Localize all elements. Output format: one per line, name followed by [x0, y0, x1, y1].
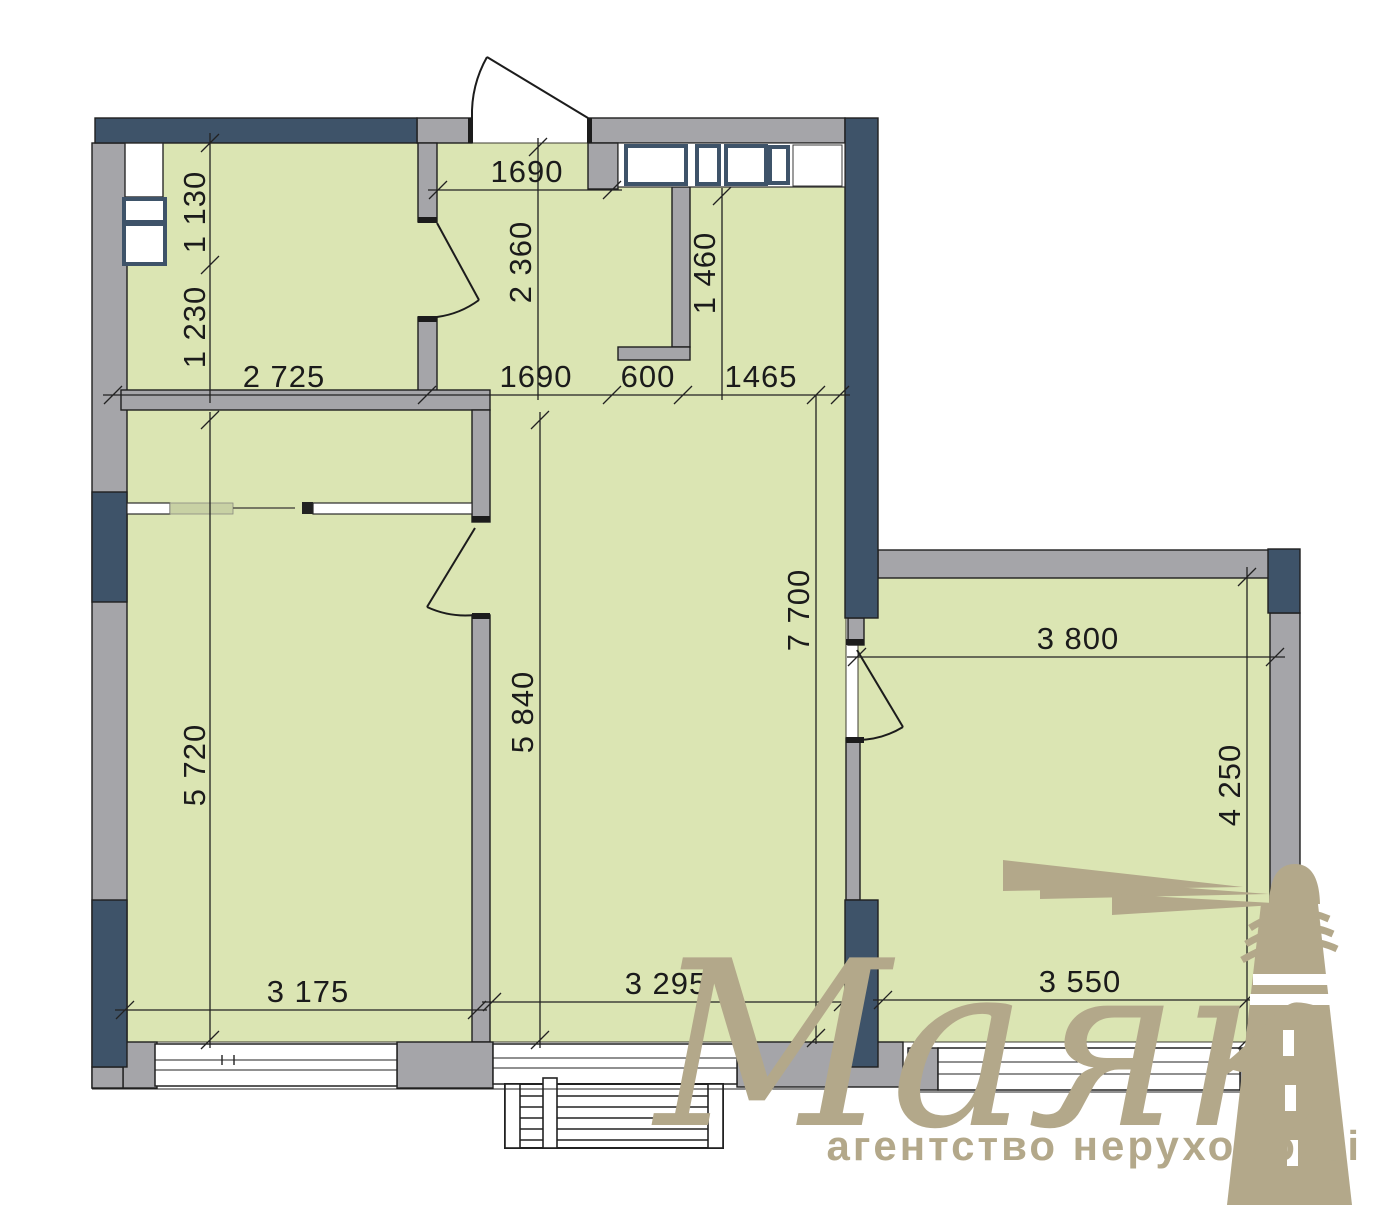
shaft-box [124, 224, 165, 264]
shaft-box-plain [125, 143, 163, 197]
partition-jamb [302, 502, 313, 514]
dim-label-closet-shaft-height: 1 130 [177, 171, 212, 254]
partition-segment [170, 503, 233, 514]
wall-top-gray-right [588, 118, 845, 143]
partition-segment [127, 503, 170, 514]
dim-label-living-height: 5 840 [505, 671, 540, 754]
shaft-box [626, 146, 686, 184]
shaft-box [770, 147, 788, 183]
pilaster-left-mid [92, 492, 127, 602]
wall-hall-left-upper [418, 143, 437, 222]
dim-label-niche-width: 600 [621, 359, 676, 394]
wall-bedroom-right-upper [472, 410, 490, 522]
shaft-box [697, 146, 719, 184]
dim-label-bedroom-height: 5 720 [177, 724, 212, 807]
dim-label-hall-depth: 2 360 [503, 221, 538, 304]
dim-label-kitchen-top-width: 3 800 [1037, 621, 1120, 656]
dim-label-niche-depth: 1 460 [687, 232, 722, 315]
wall-kitchen-top [878, 550, 1270, 578]
watermark-tagline-text: агентство нерухомості [827, 1122, 1362, 1169]
dim-label-closet-width: 2 725 [243, 359, 326, 394]
dim-label-bedroom-width: 3 175 [267, 974, 350, 1009]
wall-bedroom-right-lower [472, 615, 490, 1042]
floor-plan-drawing: 1690 2 725 1690 600 1465 1 130 1 230 2 3… [0, 0, 1400, 1208]
wall-bottom-corner-left [123, 1042, 157, 1088]
wall-living-right-navy-top [845, 118, 878, 618]
shaft-box [726, 146, 766, 184]
wall-kitchen-corner-navy-top [1268, 549, 1300, 613]
wall-bottom-corner-left-outer [92, 1067, 123, 1088]
shaft-box [124, 199, 165, 222]
window-bedroom [155, 1044, 397, 1086]
wall-hall-left-lower [418, 317, 437, 392]
shaft-box-plain [793, 145, 842, 186]
door-entrance [468, 57, 592, 143]
dim-label-hall-top-width: 1690 [491, 154, 564, 189]
partition-segment [313, 503, 472, 514]
dim-label-kitchen-height: 4 250 [1212, 744, 1247, 827]
dim-label-hall-right-width: 1465 [725, 359, 798, 394]
wall-top-block [588, 143, 618, 189]
wall-bottom-pier1 [397, 1042, 493, 1088]
dim-label-hall-width: 1690 [500, 359, 573, 394]
wall-top-navy [95, 118, 417, 143]
wall-living-right-thin [846, 738, 860, 900]
floor-plan-page: 1690 2 725 1690 600 1465 1 130 1 230 2 3… [0, 0, 1400, 1208]
dim-label-living-full-height: 7 700 [781, 569, 816, 652]
pilaster-left-bottom [92, 900, 127, 1067]
wall-top-gray-left [417, 118, 472, 143]
dim-label-closet-height: 1 230 [177, 286, 212, 369]
